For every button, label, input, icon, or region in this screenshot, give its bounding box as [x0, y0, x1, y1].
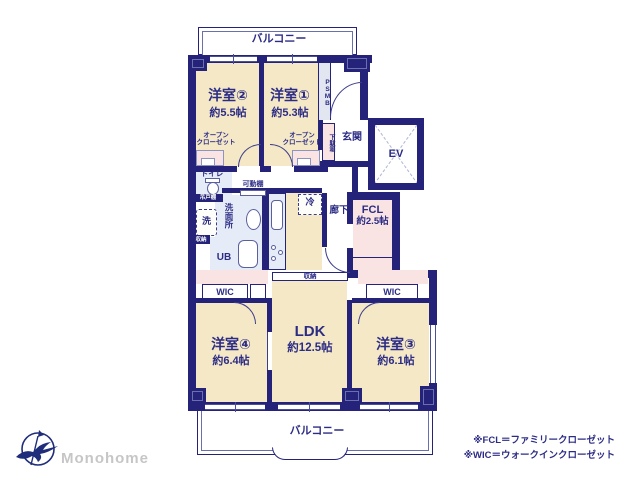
legend: ※FCL＝ファミリークローゼット ※WIC＝ウォークインクローゼット	[423, 433, 615, 463]
balcony-bottom-curve	[272, 447, 348, 460]
floorplan-page: バルコニー バルコニー	[0, 0, 640, 480]
monohome-logo-text: Monohome	[61, 450, 149, 467]
movable-shelf	[240, 190, 266, 196]
wall-kitchen-left	[262, 193, 268, 278]
window-tick	[389, 402, 390, 412]
room4-name: 洋室④	[196, 337, 266, 353]
hanging-cupboard-label: 吊戸棚	[193, 195, 223, 201]
window-tick	[233, 54, 234, 64]
stove-burner	[271, 245, 276, 250]
room3-size: 約6.1帖	[360, 355, 432, 367]
storage-center-label: 収納	[272, 273, 348, 280]
wall-corridor-right	[352, 167, 358, 194]
room1-size: 約5.3帖	[258, 107, 322, 119]
door-arc-entrance	[330, 82, 362, 118]
refrigerator-label: 冷	[298, 197, 322, 207]
monohome-logo: Monohome	[14, 424, 174, 474]
fcl-shelf-line	[353, 257, 392, 258]
wic-right-strip	[358, 270, 428, 284]
wall-genkan-bottom	[320, 161, 368, 167]
window-tick	[235, 402, 236, 412]
window-tick	[309, 402, 310, 412]
ldk-size: 約12.5帖	[272, 342, 348, 355]
washbasin	[246, 209, 261, 230]
corridor-label: 廊下	[324, 206, 354, 217]
legend-wic: ※WIC＝ウォークインクローゼット	[423, 448, 615, 463]
stove-burner	[278, 250, 283, 255]
door-arc-corridor	[325, 248, 350, 273]
room1-name: 洋室①	[258, 88, 322, 104]
balcony-top-label: バルコニー	[239, 33, 319, 45]
open-closet-room1-door	[297, 158, 311, 166]
open-closet-room2-label: オープン クローゼット	[191, 132, 241, 147]
bathtub	[238, 240, 258, 268]
room4-floor	[196, 303, 267, 403]
room3-name: 洋室③	[360, 337, 432, 353]
wic-left-door	[250, 284, 266, 299]
room4-size: 約6.4帖	[196, 355, 266, 367]
monohome-bird-logo-icon	[14, 424, 62, 472]
room2-name: 洋室②	[193, 88, 263, 104]
wic-left-label: WIC	[202, 287, 248, 297]
stove-burner	[271, 256, 276, 261]
open-closet-line2: クローゼット	[277, 139, 327, 146]
washing-machine-label: 洗	[196, 216, 217, 226]
open-closet-room2-door	[201, 158, 215, 166]
open-closet-room1-label: オープン クローゼット	[277, 132, 327, 147]
legend-fcl: ※FCL＝ファミリークローゼット	[423, 433, 615, 448]
pillar-top-left	[189, 56, 207, 71]
wall-fcl-right	[392, 192, 400, 278]
pillar-bottom-left	[189, 388, 206, 404]
pillar-top-right	[344, 55, 370, 72]
kitchen-sink	[271, 200, 283, 230]
balcony-bottom-label: バルコニー	[277, 425, 357, 437]
fcl-size: 約2.5帖	[350, 217, 395, 228]
ldk-name: LDK	[275, 324, 345, 341]
washroom-label: 洗面所	[221, 198, 233, 234]
window-tick	[292, 54, 293, 64]
open-closet-line2: クローゼット	[191, 139, 241, 146]
wic-right-label: WIC	[366, 287, 418, 297]
pillar-bottom-mid	[342, 388, 362, 404]
elevator-label: EV	[375, 148, 417, 160]
window-room3-right	[430, 325, 436, 383]
wall-corridor-ldk	[322, 193, 327, 247]
wic-left-strip	[196, 270, 268, 284]
genkan-label: 玄関	[336, 132, 368, 143]
storage-left-label: 収納	[192, 237, 210, 243]
fcl-name: FCL	[353, 204, 392, 216]
room2-size: 約5.5帖	[193, 107, 263, 119]
pillar-bottom-right	[420, 386, 437, 408]
movable-shelf-label: 可動棚	[235, 181, 271, 189]
bathroom-label: UB	[212, 252, 236, 263]
